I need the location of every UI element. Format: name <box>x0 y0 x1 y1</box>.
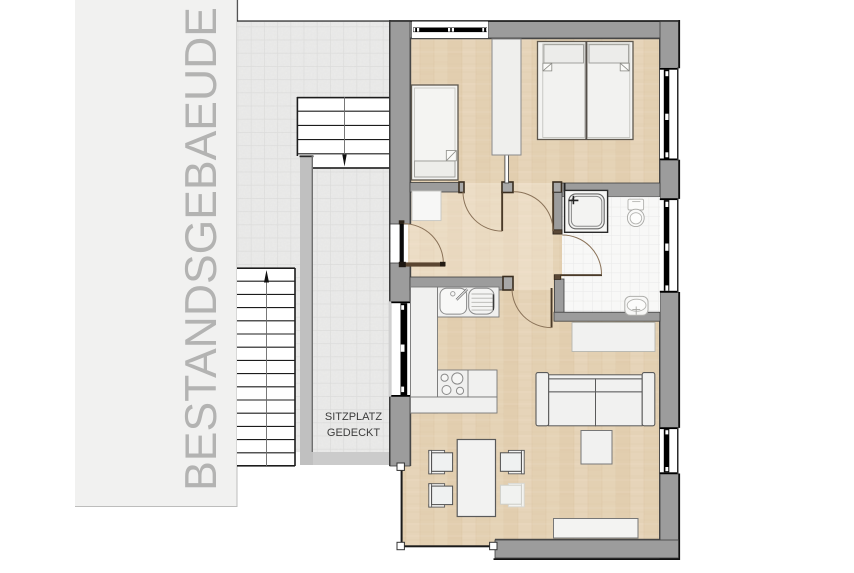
svg-text:BESTANDSGEBAEUDE: BESTANDSGEBAEUDE <box>177 7 226 491</box>
svg-text:SITZPLATZ: SITZPLATZ <box>325 411 383 423</box>
svg-text:GEDECKT: GEDECKT <box>327 427 380 439</box>
